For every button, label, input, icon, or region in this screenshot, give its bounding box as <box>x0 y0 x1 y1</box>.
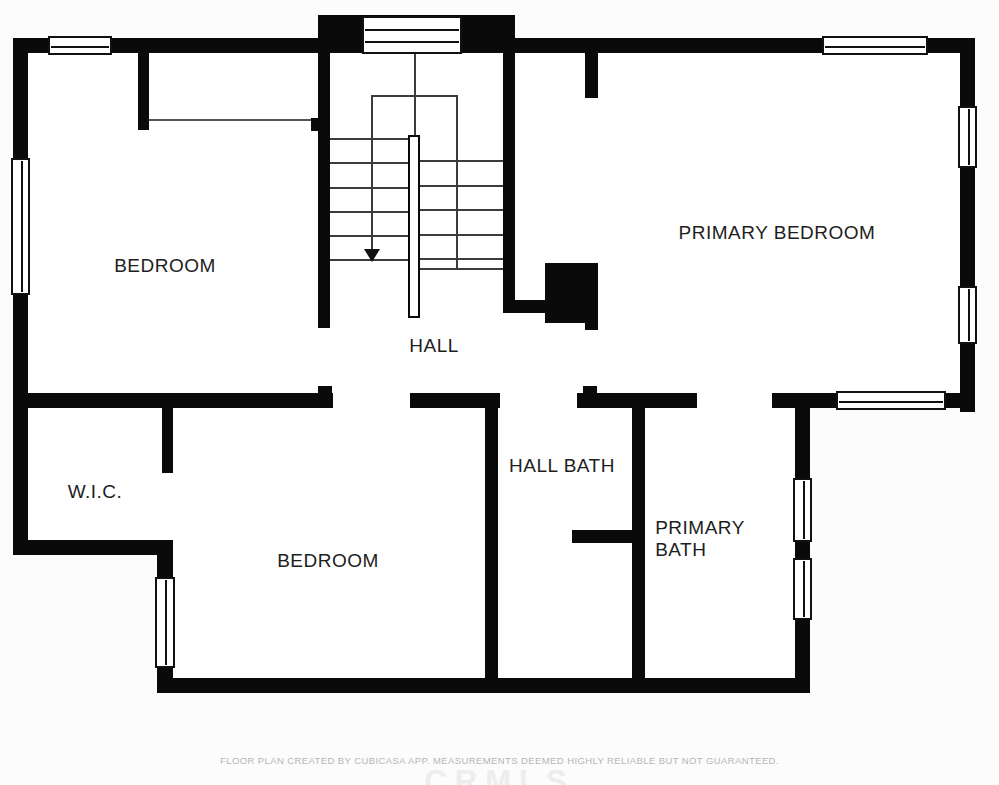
window-mullion <box>21 161 23 292</box>
wall <box>13 540 173 555</box>
wall <box>318 53 330 328</box>
stair-railing <box>408 135 420 318</box>
wall <box>572 530 632 543</box>
window-mullion <box>825 46 925 48</box>
stair-tread <box>330 235 408 237</box>
floor-plan-canvas: BEDROOMPRIMARY BEDROOMHALLW.I.C.BEDROOMH… <box>0 0 999 785</box>
window-mullion <box>839 401 943 403</box>
room-label: HALL BATH <box>509 455 615 477</box>
stair-tread <box>330 138 408 140</box>
stair-tread <box>420 160 503 162</box>
floor-plan-page: { "page": { "footer_disclaimer": "FLOOR … <box>0 0 999 785</box>
stair-tread <box>420 185 503 187</box>
room-label: PRIMARY BATH <box>655 517 745 561</box>
stair-tread <box>420 268 503 270</box>
wall <box>138 53 149 130</box>
room-label: HALL <box>409 335 459 357</box>
stair-tread <box>420 234 503 236</box>
room-floor <box>13 400 173 555</box>
room-label: BEDROOM <box>114 255 216 277</box>
window-mullion <box>803 481 805 539</box>
stair-tread <box>330 162 408 164</box>
wall <box>13 38 28 555</box>
wall <box>960 38 975 412</box>
room-label: PRIMARY BEDROOM <box>679 222 876 244</box>
window-mullion <box>803 561 805 617</box>
window-mullion <box>968 109 970 165</box>
closet-opening-line <box>149 119 311 121</box>
wall <box>503 300 545 313</box>
window-mullion <box>968 289 970 341</box>
wall <box>410 393 500 408</box>
wall <box>585 53 598 98</box>
room-label: W.I.C. <box>68 481 123 503</box>
stair-tread <box>330 211 408 213</box>
window-mullion <box>365 29 459 31</box>
mls-watermark: CRMLS <box>0 764 999 785</box>
wall <box>585 320 598 330</box>
window <box>362 16 462 54</box>
stair-down-arrow-icon <box>364 249 380 262</box>
wall <box>583 386 597 393</box>
stair-tread <box>420 209 503 211</box>
stair-tread <box>420 258 503 260</box>
wall <box>13 393 333 408</box>
stair-upper-flight-outline <box>456 95 458 268</box>
wall <box>545 263 598 323</box>
stair-center-line <box>414 54 416 135</box>
wall <box>318 386 332 393</box>
wall <box>795 408 810 693</box>
wall <box>162 408 173 473</box>
wall <box>157 678 808 693</box>
stair-tread <box>330 187 408 189</box>
wall <box>485 408 498 678</box>
window-mullion <box>51 46 109 48</box>
wall <box>503 53 515 310</box>
wall <box>577 393 697 408</box>
stair-direction-arrow-stem <box>371 95 373 250</box>
room-label: BEDROOM <box>277 550 379 572</box>
window-mullion <box>365 41 459 43</box>
wall <box>632 408 645 678</box>
window-mullion <box>165 580 167 665</box>
